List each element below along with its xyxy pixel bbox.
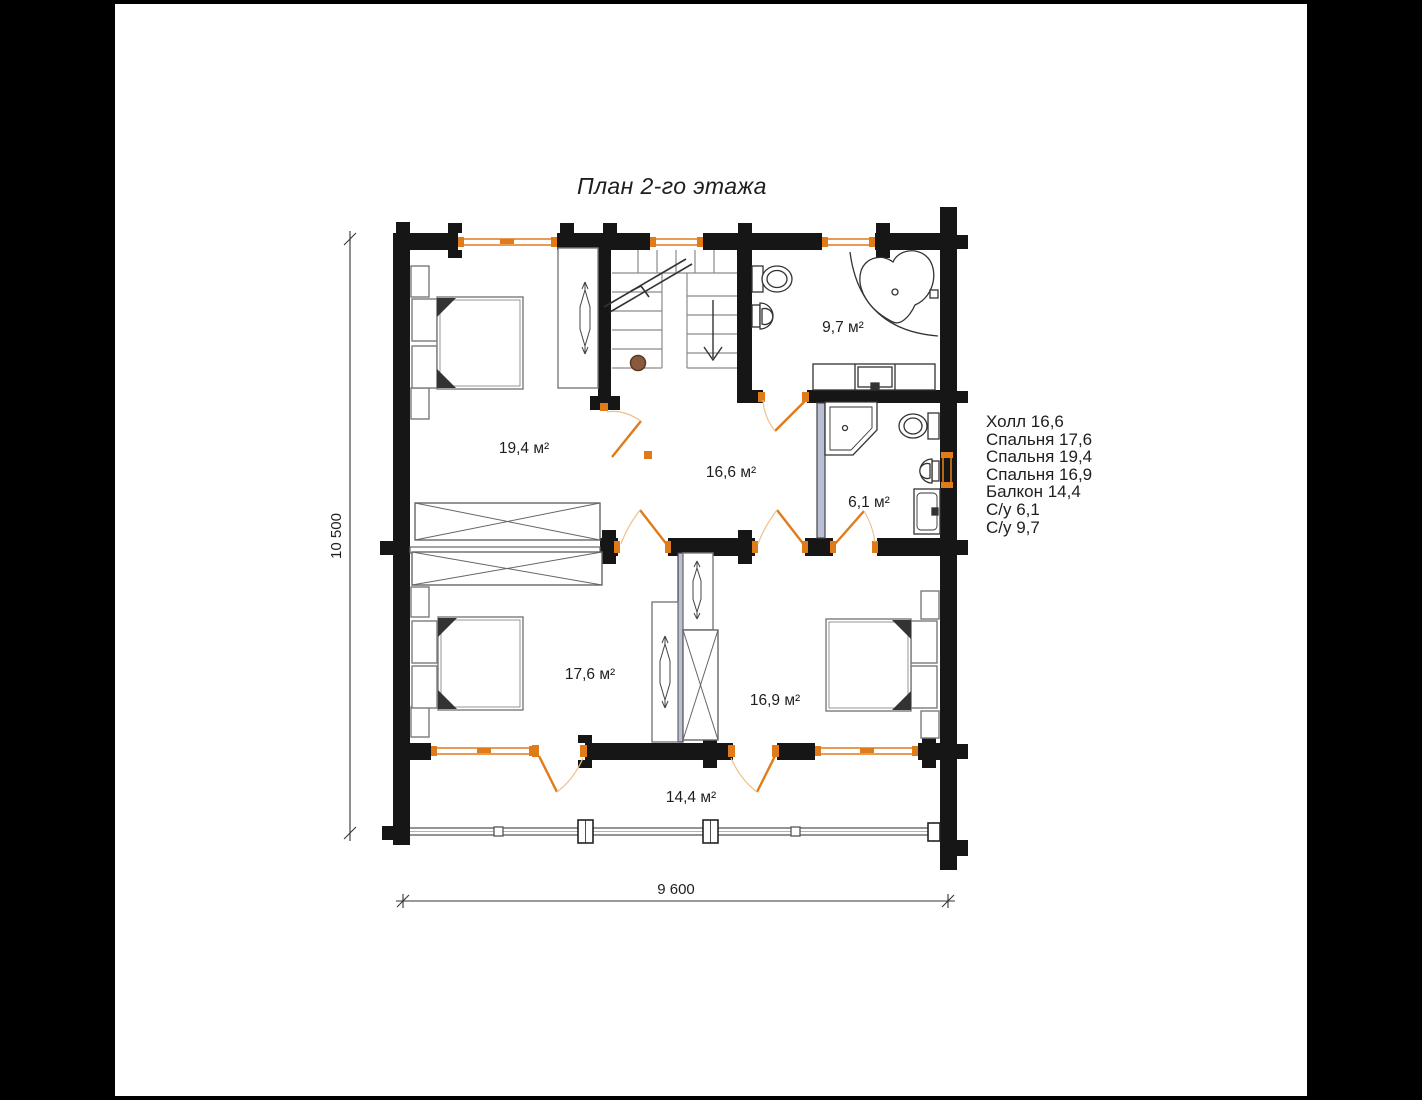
cabinet	[921, 711, 939, 738]
wardrobe-crossed	[683, 630, 718, 740]
railing-post-small	[791, 827, 800, 836]
window	[458, 237, 557, 247]
double-bed	[438, 617, 523, 710]
window	[822, 237, 875, 247]
window	[815, 746, 918, 756]
window	[650, 237, 703, 247]
nightstand	[412, 346, 437, 388]
cabinet	[411, 388, 429, 419]
washbasin	[914, 489, 940, 534]
svg-text:9 600: 9 600	[657, 881, 695, 898]
balcony-railing	[410, 820, 940, 843]
room-area-label: 16,6 м²	[706, 464, 756, 481]
double-bed	[437, 297, 523, 389]
sliding-wardrobe	[652, 602, 678, 742]
door-bedroom-194	[600, 403, 652, 459]
nightstand	[911, 621, 937, 663]
room-area-label: 19,4 м²	[499, 440, 549, 457]
dimension-vertical: 10 500	[328, 231, 356, 841]
wardrobe-crossed	[412, 552, 602, 585]
toilet	[752, 266, 792, 292]
staircase	[604, 250, 737, 371]
bidet	[920, 459, 939, 483]
door-bathroom-61	[830, 511, 878, 553]
sliding-wardrobe	[683, 553, 713, 630]
cabinet	[921, 591, 939, 619]
railing-end	[928, 823, 940, 841]
door-bedroom-169	[752, 510, 808, 553]
double-bed	[826, 619, 911, 711]
bedroom-176-furniture	[411, 552, 678, 742]
floor-plan-drawing: 19,4 м² 16,6 м² 9,7 м² 6,1 м² 17,6 м² 16…	[0, 0, 1422, 1100]
stair-break-line	[604, 259, 692, 312]
door-balcony-right	[728, 745, 779, 792]
newel-post	[631, 356, 646, 371]
nightstand	[911, 666, 937, 708]
railing-post-small	[494, 827, 503, 836]
partition-wall-bathroom-61	[817, 403, 825, 538]
cabinet	[411, 266, 429, 297]
room-area-label: 17,6 м²	[565, 666, 615, 683]
wardrobe-crossed	[415, 503, 600, 540]
bedroom-169-furniture	[683, 553, 939, 740]
bidet	[752, 303, 773, 329]
bedroom-194-furniture	[411, 248, 600, 540]
cabinet	[411, 707, 429, 737]
toilet	[899, 413, 939, 439]
dimension-horizontal: 9 600	[396, 881, 955, 908]
sliding-wardrobe	[558, 248, 598, 388]
door-bedroom-176	[614, 510, 671, 553]
nightstand	[412, 666, 437, 708]
room-area-label: 16,9 м²	[750, 692, 800, 709]
door-bathroom-97	[758, 392, 809, 431]
nightstand	[412, 621, 437, 663]
nightstand	[412, 299, 437, 341]
bathroom-61-fixtures	[825, 402, 940, 534]
sink-vanity	[813, 364, 935, 390]
svg-text:10 500: 10 500	[328, 513, 345, 559]
stair-direction-arrow	[704, 300, 722, 360]
room-area-label: 6,1 м²	[848, 494, 890, 511]
door-balcony-left	[532, 745, 587, 792]
room-area-label: 9,7 м²	[822, 319, 864, 336]
partition-wall-wardrobe	[678, 553, 683, 742]
room-area-label: 14,4 м²	[666, 789, 716, 806]
shower-cabin	[825, 402, 877, 455]
cabinet	[411, 587, 429, 617]
window	[431, 746, 535, 756]
